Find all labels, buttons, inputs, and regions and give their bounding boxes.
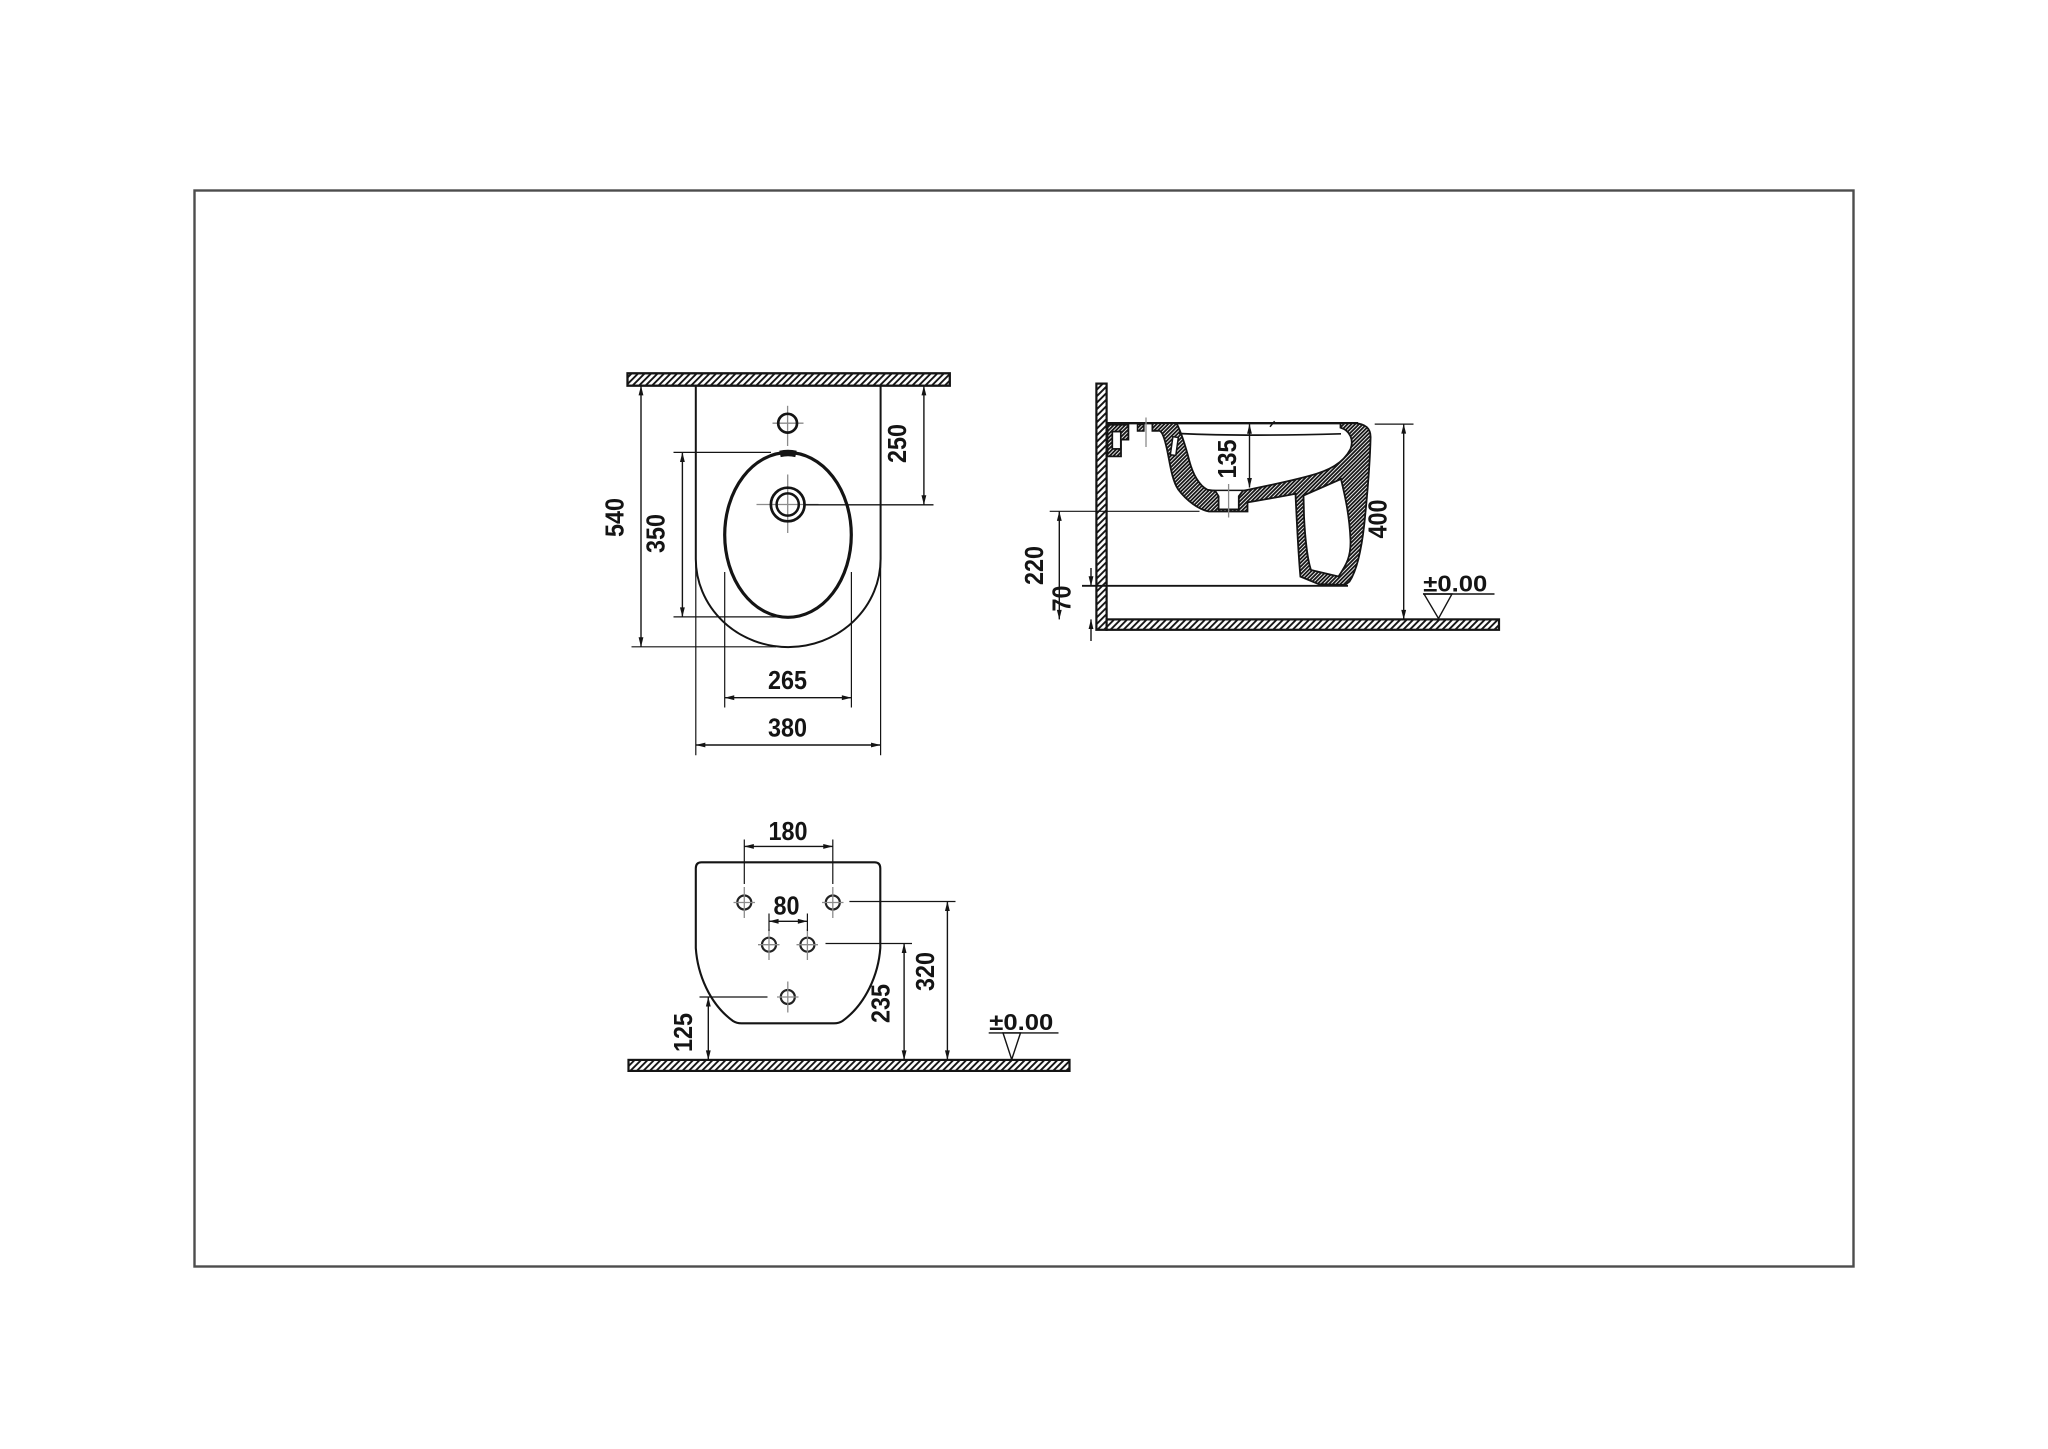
svg-text:380: 380 <box>768 713 807 743</box>
svg-text:80: 80 <box>774 891 800 921</box>
svg-text:350: 350 <box>641 514 671 553</box>
svg-text:250: 250 <box>882 424 912 463</box>
svg-text:135: 135 <box>1212 440 1242 479</box>
svg-text:70: 70 <box>1047 586 1077 612</box>
svg-text:320: 320 <box>910 952 940 991</box>
svg-text:265: 265 <box>768 665 807 695</box>
svg-text:220: 220 <box>1019 546 1049 585</box>
svg-text:125: 125 <box>668 1013 698 1052</box>
svg-text:400: 400 <box>1363 500 1393 539</box>
svg-text:180: 180 <box>769 816 808 846</box>
svg-text:540: 540 <box>600 498 630 537</box>
svg-text:±0.00: ±0.00 <box>989 1009 1053 1035</box>
svg-text:235: 235 <box>865 984 895 1023</box>
svg-text:±0.00: ±0.00 <box>1423 571 1487 597</box>
